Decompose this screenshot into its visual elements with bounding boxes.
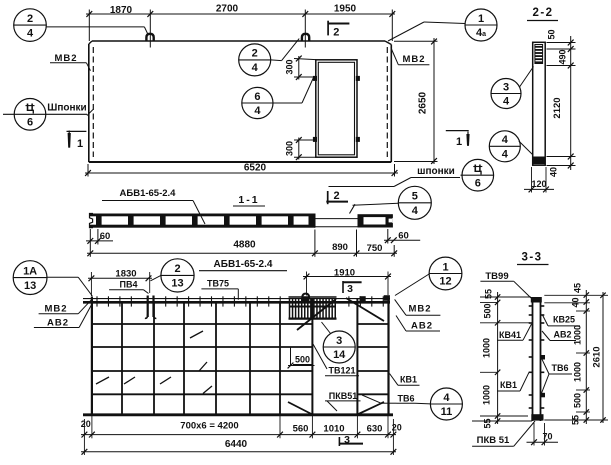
svg-text:2: 2 (252, 48, 258, 60)
svg-text:ТВ6: ТВ6 (551, 363, 568, 373)
svg-text:890: 890 (332, 242, 348, 253)
svg-text:АБВ1-65-2.4: АБВ1-65-2.4 (120, 188, 177, 199)
svg-text:АВ2: АВ2 (47, 318, 69, 329)
svg-text:1: 1 (442, 261, 448, 273)
svg-text:490: 490 (558, 49, 568, 64)
svg-text:1-1: 1-1 (238, 194, 259, 206)
svg-text:ПКВ 51: ПКВ 51 (477, 435, 510, 446)
svg-text:АВ2: АВ2 (411, 321, 433, 332)
svg-text:шпонки: шпонки (417, 166, 455, 177)
svg-text:ТВ121: ТВ121 (328, 365, 355, 375)
svg-text:КВ41: КВ41 (499, 330, 521, 340)
svg-text:120: 120 (531, 179, 546, 189)
svg-text:МВ2: МВ2 (402, 54, 425, 65)
svg-text:6520: 6520 (244, 163, 267, 174)
svg-text:1000: 1000 (482, 338, 492, 358)
svg-text:55: 55 (484, 289, 494, 299)
svg-text:КВ1: КВ1 (500, 380, 517, 390)
svg-text:300: 300 (285, 141, 295, 156)
svg-text:2: 2 (174, 263, 180, 275)
svg-text:4: 4 (252, 62, 259, 74)
svg-text:4: 4 (503, 96, 510, 108)
svg-text:Шпонки: Шпонки (47, 103, 86, 114)
svg-text:300: 300 (285, 59, 295, 74)
svg-text:6: 6 (254, 91, 260, 103)
svg-text:1870: 1870 (110, 5, 133, 16)
svg-text:Ц: Ц (474, 163, 482, 175)
svg-text:20: 20 (81, 419, 91, 429)
svg-text:60: 60 (100, 231, 111, 242)
svg-text:630: 630 (367, 424, 383, 435)
svg-text:500: 500 (573, 393, 583, 408)
svg-text:4880: 4880 (233, 239, 256, 250)
svg-text:2: 2 (333, 27, 339, 39)
svg-text:ТВ6: ТВ6 (397, 393, 414, 403)
svg-text:2: 2 (27, 13, 33, 25)
svg-text:40: 40 (549, 167, 559, 177)
svg-text:50: 50 (547, 29, 557, 39)
svg-text:500: 500 (483, 303, 493, 318)
svg-text:3-3: 3-3 (521, 252, 542, 264)
svg-text:13: 13 (24, 280, 36, 292)
svg-text:ПКВ51: ПКВ51 (329, 391, 357, 401)
svg-text:1010: 1010 (323, 424, 344, 435)
svg-text:750: 750 (367, 243, 383, 254)
svg-text:11: 11 (441, 406, 453, 418)
svg-text:6: 6 (475, 177, 481, 189)
svg-text:70: 70 (542, 432, 552, 442)
svg-text:1: 1 (478, 13, 484, 25)
svg-text:Ц: Ц (26, 102, 34, 114)
svg-text:40: 40 (571, 297, 581, 307)
svg-text:3: 3 (503, 81, 509, 93)
svg-text:5: 5 (412, 191, 418, 203)
svg-text:2: 2 (333, 190, 339, 202)
svg-text:20: 20 (392, 423, 402, 433)
svg-text:1000: 1000 (482, 385, 492, 405)
svg-text:4: 4 (254, 105, 261, 117)
svg-text:4: 4 (502, 149, 509, 161)
svg-text:КВ25: КВ25 (553, 315, 575, 325)
svg-text:АВ2: АВ2 (553, 330, 571, 340)
svg-text:6440: 6440 (225, 439, 248, 450)
svg-text:1А: 1А (23, 265, 37, 277)
svg-text:4: 4 (502, 134, 509, 146)
svg-text:1000: 1000 (573, 325, 583, 345)
svg-text:4: 4 (412, 205, 419, 217)
svg-text:2120: 2120 (552, 97, 563, 118)
svg-text:700х6 = 4200: 700х6 = 4200 (180, 421, 238, 432)
svg-text:2650: 2650 (418, 91, 429, 114)
svg-text:6: 6 (27, 117, 33, 129)
svg-text:13: 13 (171, 278, 183, 290)
svg-text:2-2: 2-2 (532, 7, 553, 19)
svg-text:ПВ4: ПВ4 (120, 280, 138, 290)
svg-text:ТВ99: ТВ99 (485, 271, 508, 282)
svg-text:АБВ1-65-2.4: АБВ1-65-2.4 (214, 259, 273, 270)
svg-text:КВ1: КВ1 (400, 375, 417, 385)
svg-text:1830: 1830 (115, 268, 136, 279)
svg-text:3: 3 (347, 283, 353, 295)
svg-text:1910: 1910 (334, 267, 355, 278)
svg-text:ТВ75: ТВ75 (207, 278, 229, 288)
svg-text:3: 3 (344, 434, 350, 446)
svg-text:12: 12 (439, 276, 451, 288)
svg-text:1000: 1000 (573, 362, 583, 382)
svg-text:3: 3 (336, 335, 342, 347)
svg-text:560: 560 (293, 424, 309, 435)
svg-text:1: 1 (456, 136, 462, 148)
svg-text:2610: 2610 (592, 346, 603, 367)
svg-text:1: 1 (77, 138, 83, 150)
svg-text:4: 4 (27, 27, 34, 39)
svg-text:МВ2: МВ2 (44, 304, 67, 315)
svg-text:1950: 1950 (334, 4, 357, 15)
svg-text:55: 55 (483, 418, 493, 428)
svg-text:4: 4 (443, 392, 450, 404)
svg-text:2700: 2700 (216, 4, 239, 15)
svg-text:МВ2: МВ2 (408, 304, 431, 315)
svg-text:45: 45 (573, 283, 583, 293)
svg-text:14: 14 (333, 349, 346, 361)
svg-text:55: 55 (571, 415, 581, 425)
svg-text:500: 500 (295, 354, 310, 364)
svg-text:60: 60 (398, 230, 409, 241)
